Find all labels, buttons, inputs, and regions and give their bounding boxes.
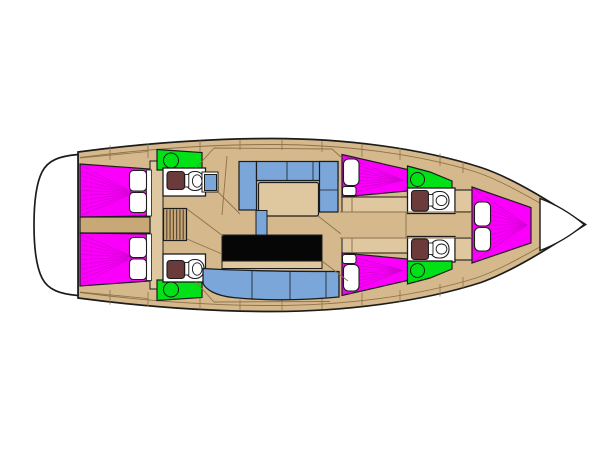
yacht-deck-plan-page <box>0 0 600 450</box>
pillow <box>130 259 147 280</box>
pillow <box>344 159 360 186</box>
toilet <box>429 192 450 210</box>
bow-locker-port <box>455 190 472 212</box>
toilet <box>185 172 204 191</box>
yacht-deck-plan <box>0 0 600 450</box>
pillow <box>475 228 491 252</box>
aft-starboard-headboard <box>147 234 152 281</box>
pillow <box>130 193 147 213</box>
shower-drain <box>411 264 425 278</box>
toilet-seat <box>167 261 185 279</box>
pillow <box>130 171 147 192</box>
pillow <box>130 238 147 258</box>
nav-seat <box>205 175 217 191</box>
toilet-seat <box>412 239 429 260</box>
engine-compartment <box>80 217 150 233</box>
toilet-seat <box>167 172 185 190</box>
shower-drain <box>164 153 179 168</box>
shower-drain <box>164 282 179 297</box>
pillow <box>343 187 357 196</box>
shower-drain <box>411 173 425 187</box>
pillow <box>344 265 360 292</box>
toilet <box>429 240 450 258</box>
centre-counter <box>222 235 322 261</box>
aft-port-headboard <box>147 170 152 216</box>
wardrobe-column <box>150 161 163 289</box>
toilet-seat <box>412 191 429 212</box>
galley-bench-starboard <box>203 269 339 300</box>
dinette-settee-right <box>320 162 339 213</box>
toilet <box>185 260 204 279</box>
bow-locker-starboard <box>455 238 472 260</box>
stern-bathing-platform <box>34 155 78 296</box>
bow-point <box>540 199 584 251</box>
pillow <box>475 202 491 226</box>
dinette-settee-left <box>239 162 257 211</box>
pillow <box>343 255 357 264</box>
centre-counter-front <box>222 261 322 269</box>
dinette-stool <box>256 211 267 236</box>
